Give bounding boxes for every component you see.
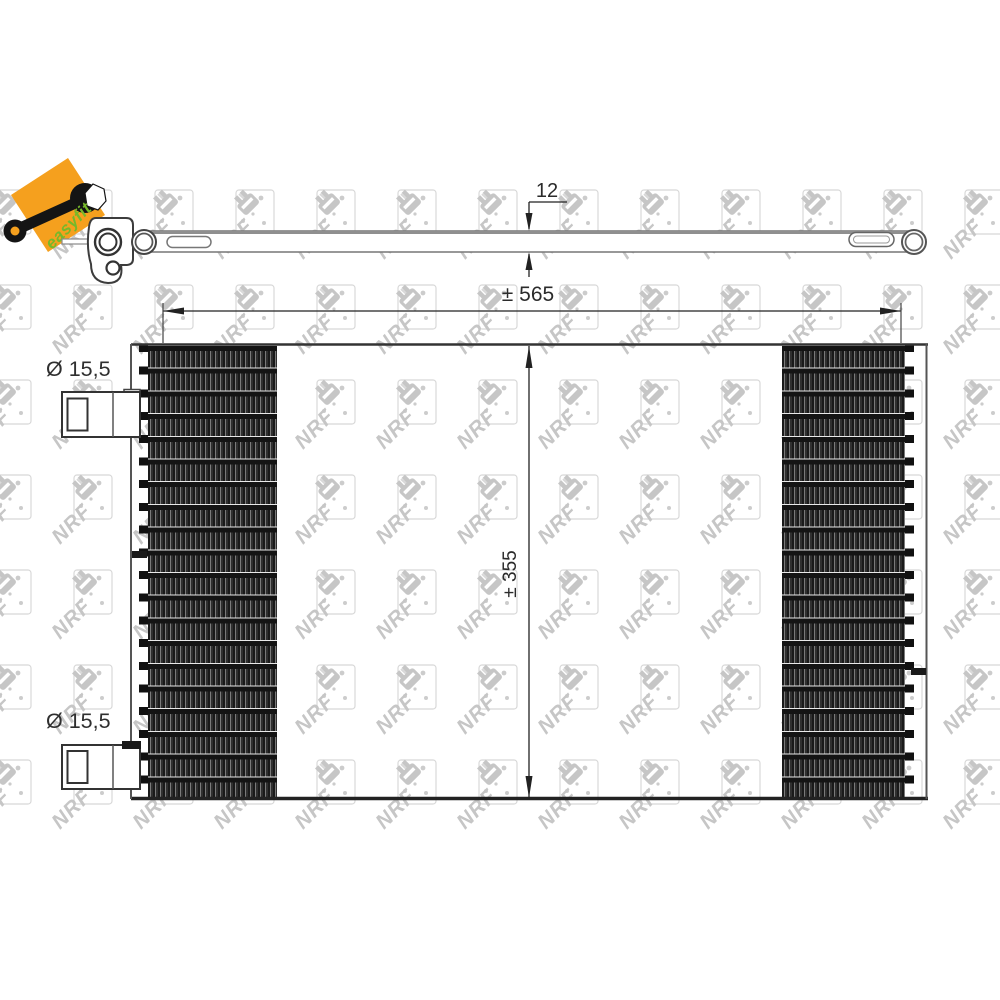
connector-bottom <box>62 741 141 789</box>
port-top-label: Ø 15,5 <box>46 357 111 381</box>
side-view-bar <box>150 231 921 252</box>
slot-right <box>849 233 894 247</box>
connector-top <box>62 390 140 438</box>
dimension-width-label: ± 565 <box>502 283 554 306</box>
connector-bottom-cap <box>122 741 141 749</box>
right-mount-tab <box>911 668 926 675</box>
dimension-height-label: ± 355 <box>500 550 521 597</box>
dimension-depth: 12 <box>526 180 568 277</box>
left-mount-tab <box>132 551 147 558</box>
dimension-height: ± 355 <box>500 346 533 798</box>
product-image: NRFNRFNRFNRFNRFNRFNRFNRFNRFNRFNRFNRFNRFN… <box>0 0 1000 1000</box>
port-bottom-label: Ø 15,5 <box>46 709 111 733</box>
side-view <box>62 218 926 283</box>
dimension-width: ± 565 <box>163 283 901 343</box>
connector-bottom-port <box>68 751 88 783</box>
dimension-depth-label: 12 <box>536 180 558 202</box>
connector-top-port <box>68 399 88 431</box>
